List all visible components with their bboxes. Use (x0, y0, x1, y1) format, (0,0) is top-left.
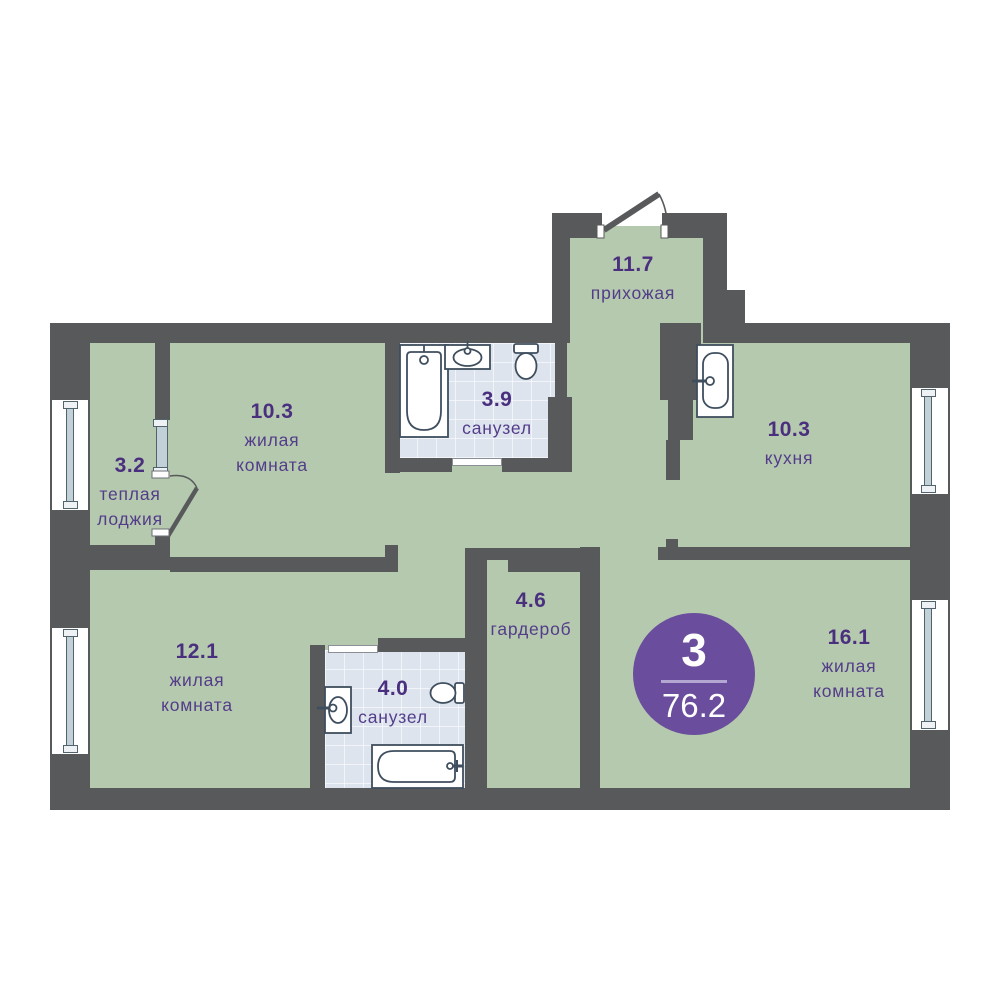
room-name: жилая комната (142, 668, 252, 719)
room-name: санузел (432, 416, 562, 441)
room-label-living-room-1: 10.3 жилая комната (217, 400, 327, 479)
room-area: 4.0 (328, 677, 458, 701)
room-area: 10.3 (217, 400, 327, 424)
room-area: 4.6 (471, 589, 591, 613)
entry-door-icon (597, 194, 668, 238)
badge-divider (661, 680, 727, 683)
room-label-warm-loggia: 3.2 теплая лоджия (83, 454, 178, 533)
toilet-icon (514, 344, 538, 379)
room-name: теплая лоджия (83, 482, 178, 533)
room-name: жилая комната (794, 654, 904, 705)
kitchen-sink-icon (692, 345, 733, 417)
room-label-wardrobe: 4.6 гардероб (471, 589, 591, 642)
room-area: 10.3 (729, 418, 849, 442)
room-label-living-room-2: 12.1 жилая комната (142, 640, 252, 719)
room-name: санузел (328, 705, 458, 730)
rooms-count: 3 (681, 627, 707, 673)
room-name: гардероб (471, 617, 591, 642)
room-label-living-room-3: 16.1 жилая комната (794, 626, 904, 705)
room-area: 11.7 (568, 253, 698, 277)
room-name: жилая комната (217, 428, 327, 479)
room-label-hallway: 11.7 прихожая (568, 253, 698, 306)
bathtub-icon (372, 745, 463, 788)
room-label-kitchen: 10.3 кухня (729, 418, 849, 471)
total-area: 76.2 (662, 689, 726, 722)
room-area: 3.2 (83, 454, 178, 478)
floor-plan: 11.7 прихожая 3.2 теплая лоджия 10.3 жил… (0, 0, 1001, 1001)
sink-icon (445, 341, 490, 369)
room-name: кухня (729, 446, 849, 471)
room-label-bathroom-1: 3.9 санузел (432, 388, 562, 441)
room-label-bathroom-2: 4.0 санузел (328, 677, 458, 730)
room-name: прихожая (568, 281, 698, 306)
room-area: 3.9 (432, 388, 562, 412)
apartment-summary-badge: 3 76.2 (633, 613, 755, 735)
room-area: 12.1 (142, 640, 252, 664)
room-area: 16.1 (794, 626, 904, 650)
